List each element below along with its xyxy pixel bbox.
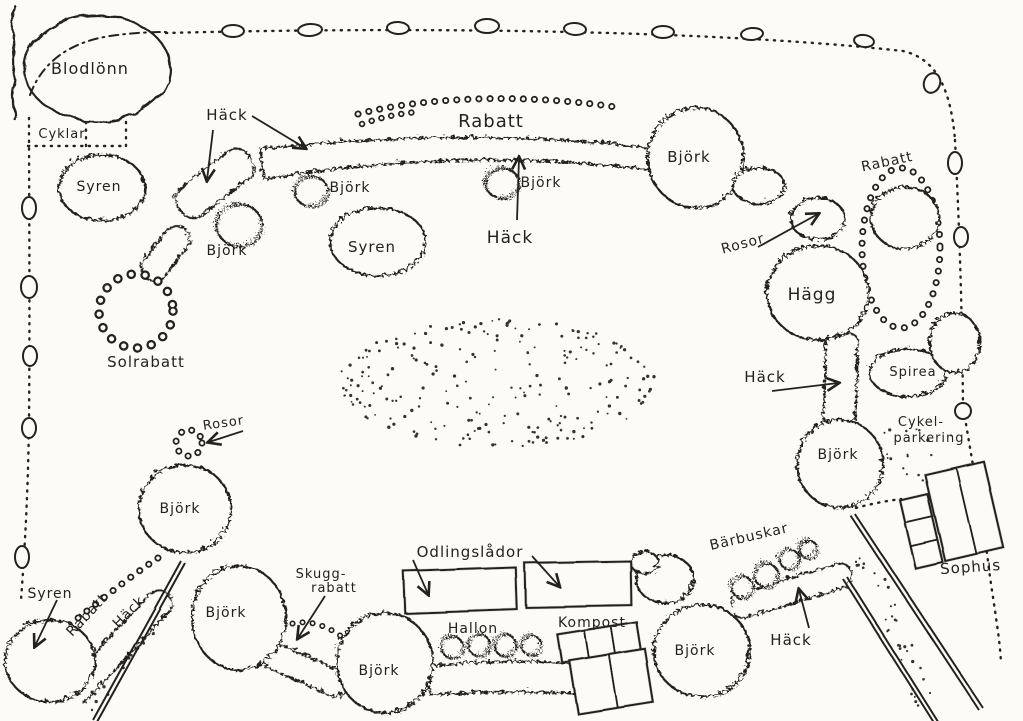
stipple-dot [612,342,615,345]
stipple-dot [95,700,98,703]
stipple-dot [459,323,461,325]
boundary-stone [955,403,971,419]
stipple-dot [392,423,395,426]
stipple-dot [855,561,857,563]
stipple-dot [445,327,448,330]
boundary-stone [22,197,36,219]
stipple-dot [572,329,575,332]
berry-bush [797,538,815,556]
stipple-dot [430,421,432,423]
stipple-dot [522,445,524,447]
stipple-dot [577,330,580,333]
stipple-dot [528,440,531,443]
bjork-bush-top-left-b [292,174,326,204]
stipple-dot [350,384,352,386]
stipple-dot [914,700,917,703]
stipple-dot [595,332,598,335]
stipple-dot [424,362,427,365]
label-bjork-bottom-mid: Björk [359,663,400,679]
stipple-dot [503,422,505,424]
stipple-dot [929,692,931,694]
stipple-dot [479,413,481,415]
label-hedge-right: Häck [744,368,785,386]
stipple-dot [862,562,865,565]
stipple-dot [459,444,462,447]
label-bjork-bottom-right: Björk [675,643,716,659]
stipple-dot [364,406,366,408]
stipple-dot [529,385,532,388]
label-blodlonn: Blodlönn [51,59,129,78]
stipple-dot [440,343,443,346]
stipple-dot [467,331,470,334]
stipple-dot [456,406,458,408]
stipple-dot [414,333,416,335]
raspberry-plant [439,634,461,656]
stipple-dot [170,606,173,609]
roses-right-bush [789,196,843,238]
border-top-dotted [166,30,955,140]
stipple-dot [467,419,470,422]
stipple-dot [477,427,480,430]
stipple-dot [624,385,627,388]
path-bottom-right-lower [843,577,938,721]
stipple-dot [365,349,368,352]
stipple-dot [494,350,496,352]
stipple-dot [362,357,364,359]
spirea-bush-upper [928,311,978,371]
stipple-dot [491,443,494,446]
stipple-dot [467,433,470,436]
stipple-dot [877,585,879,587]
stipple-dot [873,572,875,574]
bjork-bush-mid [483,166,517,196]
stipple-dot [357,384,360,387]
stipple-dot [564,362,567,365]
stipple-dot [368,404,371,407]
stipple-dot [906,650,908,652]
stipple-dot [566,437,569,440]
stipple-dot [580,346,582,348]
stipple-dot [616,396,619,399]
stipple-dot [527,352,530,355]
stipple-dot [374,414,376,416]
stipple-dot [343,395,345,397]
stipple-dot [856,564,859,567]
stipple-dot [901,659,903,661]
stipple-dot [560,429,563,432]
bjork-tree-top-right-lobe [731,166,783,202]
stipple-dot [646,375,649,378]
stipple-dot [418,405,420,407]
stipple-dot [536,435,539,438]
stipple-dot [917,474,920,477]
sun-flowerbed-ring [99,274,173,348]
stipple-dot [618,412,621,415]
stipple-dot [567,392,570,395]
stipple-dot [421,386,424,389]
stipple-dot [890,605,892,607]
label-shade-bed-line2: rabatt [311,581,357,596]
stipple-dot [515,397,517,399]
label-syren-top-mid: Syren [348,238,396,256]
stipple-dot [391,367,394,370]
stipple-dot [516,412,519,415]
stipple-dot [558,377,561,380]
stipple-dot [606,364,608,366]
stipple-dot [585,337,588,340]
stipple-dot [476,411,478,413]
boundary-stone [222,25,244,37]
stipple-dot [589,387,591,389]
stipple-dot [424,332,427,335]
stipple-dot [642,401,645,404]
stipple-dot [474,325,477,328]
stipple-dot [564,416,567,419]
stipple-dot [487,333,489,335]
stipple-dot [397,347,399,349]
stipple-dot [403,342,406,345]
stipple-dot [577,336,580,339]
stipple-dot [387,373,390,376]
stipple-dot [465,360,468,363]
shade-bed-stone-row [283,622,347,641]
stipple-dot [385,398,388,401]
label-hedge-top-mid: Häck [487,228,533,248]
stipple-dot [573,438,575,440]
planting-box-1 [403,567,516,613]
label-bjork-top-right: Björk [667,148,711,166]
stipple-dot [637,360,640,363]
stipple-dot [626,418,628,420]
stipple-dot [412,347,415,350]
stipple-dot [539,384,542,387]
arrow-shade-bed [298,596,325,638]
stipple-dot [555,405,557,407]
stipple-dot [883,432,885,434]
stipple-dot [891,615,893,617]
stipple-dot [563,350,565,352]
garden-plan: Blodlönn Cyklar Syren Häck Björk Björk S… [0,0,1023,721]
stipple-dot [885,619,887,621]
berry-bush [752,561,776,585]
stipple-dot [391,400,393,402]
stipple-dot [555,322,558,325]
stipple-dot [368,375,370,377]
stipple-dot [598,382,601,385]
stipple-dot [429,325,432,328]
flowerbed-right-bush [869,185,937,247]
stipple-dot [496,339,499,342]
stipple-dot [894,604,896,606]
stipple-dot [413,430,416,433]
stipple-dot [576,417,579,420]
raspberry-plant [519,633,539,653]
stipple-dot [883,578,886,581]
stipple-dot [630,357,633,360]
stipple-dot [615,342,617,344]
stipple-dot [395,338,398,341]
boundary-stone [387,21,410,34]
stipple-dot [435,438,437,440]
stipple-dot [581,435,584,438]
stipple-dot [644,395,646,397]
label-raspberries: Hallon [448,621,498,637]
stipple-dot [495,369,497,371]
hedge-top-long [258,136,648,177]
stipple-dot [549,420,551,422]
label-flowerbed-right: Rabatt [860,149,915,176]
stipple-dot [142,642,145,645]
label-hedge-bottom-right: Häck [770,631,811,649]
stipple-dot [519,387,521,389]
stipple-dot [152,632,155,635]
stipple-dot [607,413,609,415]
stipple-dot [446,402,449,405]
boundary-stone [652,26,674,38]
label-bjork-bottom-left-a: Björk [160,501,201,517]
stipple-dot [914,696,916,698]
stipple-dot [465,381,467,383]
stipple-dot [569,350,572,353]
stipple-dot [358,357,361,360]
stipple-dot [906,455,908,457]
label-flowerbed-top: Rabatt [458,111,524,132]
stipple-dot [560,335,563,338]
label-bike-parking-line2: parkering [893,431,964,446]
stipple-dot [608,404,611,407]
stipple-dot [888,428,891,431]
stipple-dot [922,479,924,481]
stipple-dot [590,421,592,423]
label-roses-bottom-left: Rosor [202,413,245,434]
stipple-dot [591,427,594,430]
stipple-dot [638,399,641,402]
stipple-dot [911,660,914,663]
stipple-dot [889,457,892,460]
stipple-dot [471,353,474,356]
stipple-dot [91,709,93,711]
stipple-dot [435,365,438,368]
stipple-dot [592,336,594,338]
stipple-dot [491,320,493,322]
stipple-dot [902,467,904,469]
stipple-dot [351,401,353,403]
stipple-dot [859,557,861,559]
border-corner-wavy-line [11,6,16,120]
stipple-dot [410,409,413,412]
stipple-dot [538,323,541,326]
arrow-roses-bottom-left [209,431,243,442]
stipple-dot [460,328,463,331]
stipple-dot [359,401,362,404]
label-bjork-bottom-left-b: Björk [206,605,247,621]
stipple-dot [592,352,594,354]
stipple-dot [606,396,608,398]
label-syren-top-left: Syren [76,179,121,195]
stipple-dot [474,356,476,358]
stipple-dot [642,377,645,380]
planting-box-2 [525,561,632,607]
stipple-dot [529,363,531,365]
stipple-dot [389,417,391,419]
stipple-dot [556,437,559,440]
stipple-dot [462,437,465,440]
compost-bins-bottom [569,648,653,713]
stipple-dot [470,419,473,422]
boundary-stone [948,152,962,174]
stipple-dot [623,348,626,351]
stipple-dot [411,354,414,357]
stipple-dot [511,440,513,442]
stipple-dot [347,377,349,379]
stipple-dot [435,369,438,372]
stipple-dot [349,394,352,397]
stipple-dot [371,381,374,384]
label-bjork-top-left-b: Björk [330,180,371,196]
stipple-dot [102,685,105,688]
stipple-dot [469,397,472,400]
stipple-dot [627,377,629,379]
stipple-dot [906,473,908,475]
stipple-dot [610,379,613,382]
stipple-dot [572,430,575,433]
stipple-dot [533,431,536,434]
stipple-dot [520,334,523,337]
label-bjork-mid: Björk [521,175,562,191]
stipple-dot [496,334,499,337]
stipple-dot [917,704,920,707]
stipple-dot [456,385,459,388]
stipple-dot [381,385,383,387]
stipple-dot [643,366,645,368]
stipple-dot [510,387,512,389]
label-syren-bottom-left: Syren [27,586,72,602]
stipple-dot [474,430,476,432]
stipple-dot [366,356,368,358]
boundary-stone [564,22,587,36]
label-cyklar: Cyklar [38,127,85,142]
stipple-dot [356,398,359,401]
stipple-dot [484,423,487,426]
berry-bush [729,574,751,596]
stipple-dot [648,390,651,393]
stipple-dot [575,358,577,360]
stipple-dot [638,388,641,391]
stipple-dot [459,348,461,350]
label-shade-bed-line1: Skugg- [296,567,347,582]
stipple-dot [652,375,655,378]
stipple-dot [919,667,922,670]
bjork-bush-top-left-a [214,202,260,244]
stipple-dot [399,396,402,399]
stipple-dot [598,343,600,345]
stipple-dot [862,566,865,569]
stipple-dot [536,426,539,429]
boundary-stone [921,71,943,95]
stipple-dot [887,457,889,459]
label-berry-bushes: Bärbuskar [708,520,790,554]
stipple-dot [903,645,906,648]
stipple-dot [378,349,381,352]
label-hedge-top-left: Häck [206,106,247,124]
stipple-dot [532,441,535,444]
stipple-dot [545,436,548,439]
stipple-dot [419,397,421,399]
stipple-dot [434,428,436,430]
stipple-dot [583,427,585,429]
label-compost: Kompost [558,615,626,631]
label-hagg: Hägg [788,285,837,305]
stipple-dot [930,454,932,456]
stipple-dot [527,426,530,429]
stipple-dot [415,358,418,361]
stipple-dot [468,438,471,441]
stipple-dot [403,415,406,418]
bjork-tree-bottom-mid [335,611,431,711]
stipple-dot [488,431,491,434]
stipple-dot [514,327,516,329]
stipple-dot [431,372,434,375]
stipple-dot [557,424,559,426]
stipple-dot [429,341,432,344]
label-bjork-right: Björk [818,447,859,463]
stipple-dot [345,389,348,392]
stipple-dot [586,332,588,334]
hedge-right-vertical [821,330,856,423]
stipple-dot [545,441,548,444]
stipple-dot [385,340,388,343]
stipple-dot [508,319,511,322]
boundary-stone [15,546,29,568]
stipple-dot [373,392,375,394]
stipple-dot [894,618,897,621]
stipple-dot [341,370,343,372]
stipple-dot [451,326,454,329]
stipple-dot [620,345,623,348]
bush-by-planting-boxes-small [629,550,657,572]
stipple-dot [887,629,889,631]
stipple-dot [597,411,599,413]
stipple-dot [361,375,363,377]
stipple-dot [479,322,482,325]
stipple-dot [375,341,378,344]
stipple-dot [585,349,587,351]
stipple-dot [531,431,533,433]
stipple-dot [615,351,618,354]
stipple-dot [542,439,545,442]
label-spirea: Spirea [889,365,936,380]
stipple-dot [922,678,925,681]
stipple-dot [566,356,568,358]
stipple-dot [361,371,364,374]
stipple-dot [362,390,364,392]
stipple-dot [610,363,613,366]
stipple-dot [504,415,506,417]
stipple-dot [492,396,494,398]
label-planting-boxes: Odlingslådor [417,543,524,561]
stipple-dot [367,366,370,369]
stipple-dot [560,415,562,417]
stipple-dot [453,374,456,377]
stipple-dot [387,426,390,429]
stipple-dot [563,354,566,357]
stipple-dot [395,342,398,345]
stipple-dot [910,693,913,696]
stipple-dot [483,330,485,332]
boundary-stone [23,346,37,366]
garden-plan-drawing: Blodlönn Cyklar Syren Häck Björk Björk S… [0,0,1023,721]
stipple-dot [899,647,902,650]
